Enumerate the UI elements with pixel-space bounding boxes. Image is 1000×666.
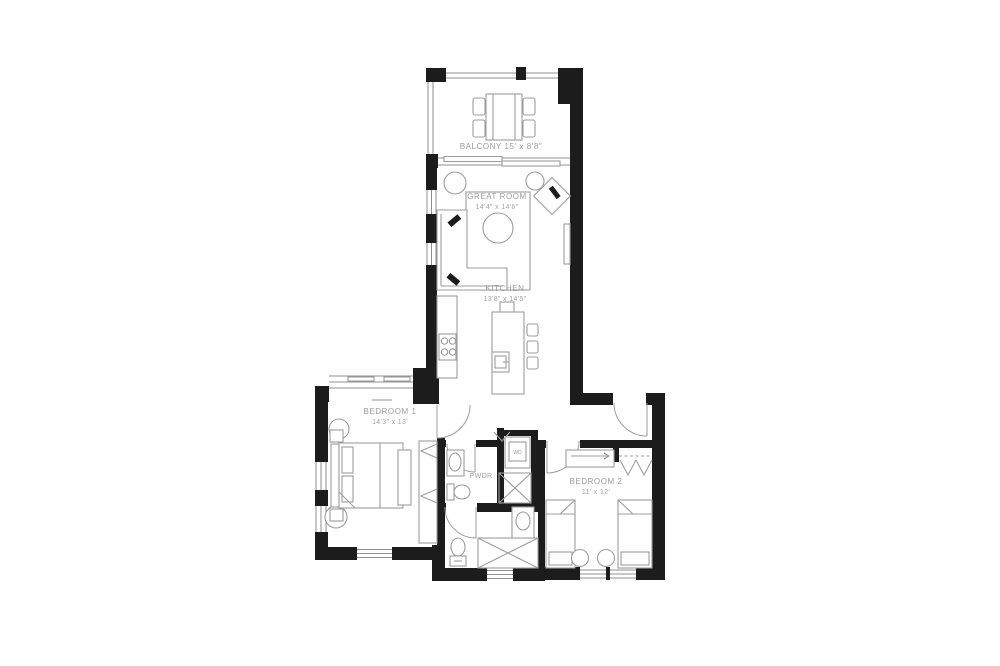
bar-stools — [527, 324, 538, 369]
floor-plan-drawing: BALCONY 15' x 8'8" — [0, 0, 1000, 666]
coffee-table — [483, 213, 513, 243]
dresser — [566, 450, 614, 467]
great-room-dims: 14'4" x 14'6" — [476, 204, 519, 211]
bath-vanity — [512, 507, 534, 539]
planter — [444, 172, 466, 194]
bedroom2-dims: 11' x 12' — [582, 489, 610, 496]
balcony: BALCONY 15' x 8'8" — [428, 73, 558, 156]
sliding-door — [438, 157, 570, 167]
planter — [526, 172, 544, 190]
windows — [314, 157, 636, 583]
nightstand — [330, 430, 343, 442]
bedroom1-door — [437, 405, 470, 438]
bay-window — [329, 376, 413, 400]
bathtub — [478, 538, 538, 568]
cooktop — [439, 334, 456, 360]
media-console — [564, 224, 570, 264]
entry-door — [613, 392, 647, 436]
pillow — [342, 476, 353, 502]
twin-bed-1 — [546, 500, 575, 568]
bedroom1-label: BEDROOM 1 — [363, 407, 416, 416]
pillow — [549, 552, 572, 565]
outdoor-dining-table — [473, 94, 535, 140]
bedroom2-closet — [619, 456, 652, 475]
powder-room: PWDR — [447, 450, 492, 500]
great-room-label: GREAT ROOM — [467, 192, 527, 201]
nightstand — [330, 509, 343, 521]
bedroom-2: BEDROOM 2 11' x 12' — [546, 450, 652, 568]
pillow — [342, 447, 353, 473]
bed-queen — [330, 430, 411, 521]
twin-bed-2 — [618, 500, 652, 568]
kitchen: KITCHEN 13'8" x 14'5" — [437, 284, 538, 394]
balcony-label: BALCONY 15' x 8'8" — [460, 142, 543, 151]
pwdr-sink — [447, 450, 464, 476]
kitchen-island — [492, 302, 524, 394]
pwdr-toilet — [447, 484, 470, 500]
bathroom-door — [445, 502, 477, 538]
round-stool — [598, 550, 615, 567]
bedroom2-label: BEDROOM 2 — [569, 477, 622, 486]
bedroom1-closet — [419, 441, 437, 543]
floor-plan-page: BALCONY 15' x 8'8" — [0, 0, 1000, 666]
bath-toilet — [450, 538, 466, 566]
kitchen-label: KITCHEN — [485, 284, 524, 293]
round-stool — [572, 550, 589, 567]
pwdr-label: PWDR — [470, 473, 493, 480]
bench — [398, 450, 411, 505]
great-room: GREAT ROOM 14'4" x 14'6" — [437, 172, 570, 290]
washer-dryer-label: WD — [513, 450, 522, 456]
bedroom1-dims: 14'3" x 13' — [372, 419, 408, 426]
bathroom — [450, 507, 538, 568]
bedroom-1: BEDROOM 1 14'3" x 13' — [325, 407, 437, 543]
pillow — [621, 552, 649, 565]
